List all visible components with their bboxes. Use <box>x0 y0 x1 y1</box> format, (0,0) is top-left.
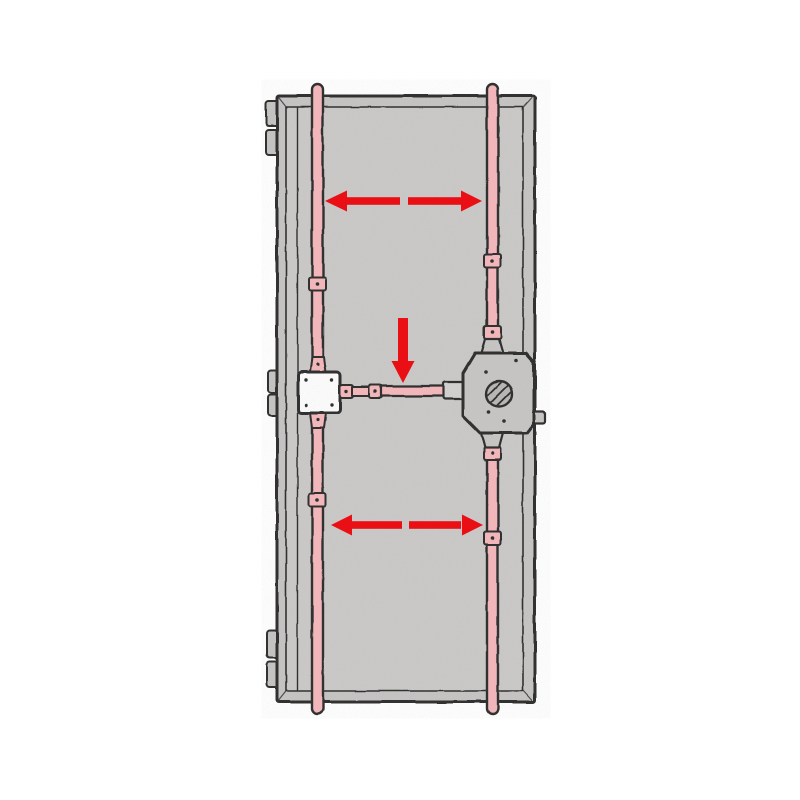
diagram-canvas <box>0 0 800 800</box>
arrow-shaft <box>345 197 400 205</box>
drawing-root <box>262 80 550 718</box>
arrow-shaft <box>398 318 408 362</box>
door-lock-diagram <box>0 0 800 800</box>
arrow-shaft <box>350 521 402 529</box>
arrow-shaft <box>408 197 461 205</box>
arrow-shaft <box>409 521 461 529</box>
paper-grain-overlay <box>262 80 550 718</box>
